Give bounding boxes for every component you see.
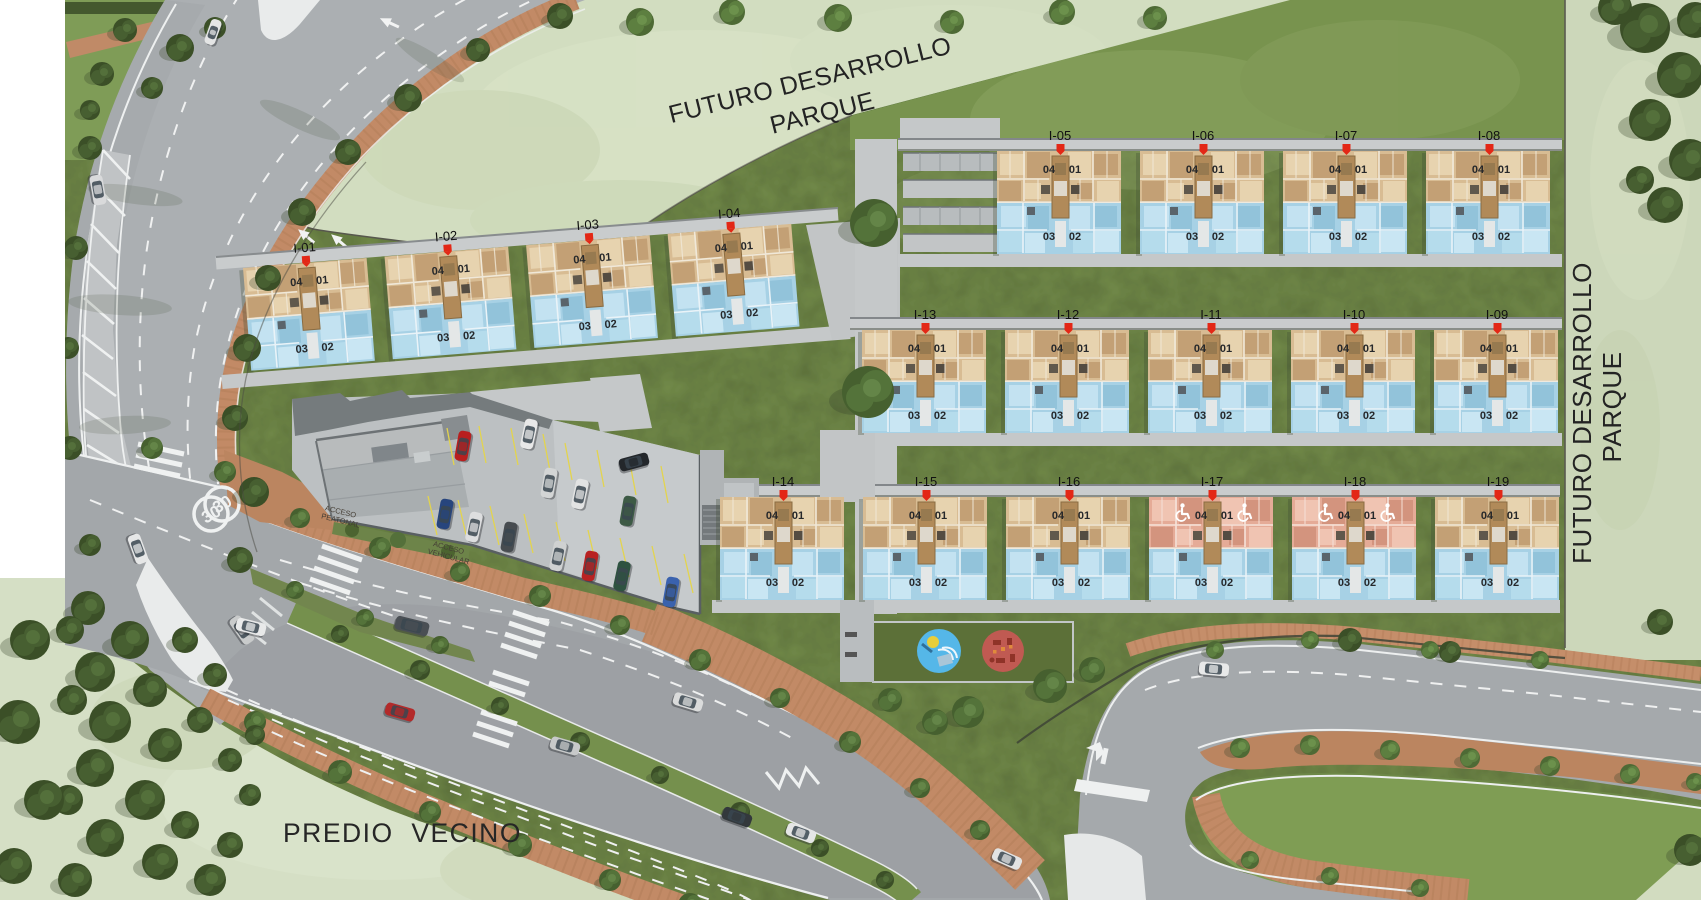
svg-text:03: 03 <box>909 577 921 589</box>
svg-text:02: 02 <box>604 318 617 331</box>
svg-text:01: 01 <box>935 510 947 522</box>
svg-text:04: 04 <box>290 276 304 289</box>
svg-text:04: 04 <box>1186 164 1199 176</box>
svg-text:01: 01 <box>1212 164 1224 176</box>
svg-text:02: 02 <box>463 330 476 343</box>
svg-text:04: 04 <box>1051 343 1064 355</box>
svg-text:01: 01 <box>1355 164 1367 176</box>
svg-text:03: 03 <box>908 410 920 422</box>
svg-text:03: 03 <box>1043 231 1055 243</box>
svg-text:I-19: I-19 <box>1487 474 1509 489</box>
svg-text:02: 02 <box>1069 231 1081 243</box>
svg-text:03: 03 <box>295 343 308 356</box>
svg-text:03: 03 <box>1472 231 1484 243</box>
svg-text:02: 02 <box>1498 231 1510 243</box>
svg-text:PARQUE: PARQUE <box>1597 352 1627 463</box>
svg-text:01: 01 <box>599 251 612 264</box>
svg-text:02: 02 <box>1355 231 1367 243</box>
svg-text:02: 02 <box>1363 410 1375 422</box>
svg-text:I-07: I-07 <box>1335 128 1357 143</box>
svg-text:02: 02 <box>1221 577 1233 589</box>
svg-text:02: 02 <box>321 341 334 354</box>
svg-text:01: 01 <box>1077 343 1089 355</box>
svg-text:04: 04 <box>766 510 779 522</box>
svg-text:I-17: I-17 <box>1201 474 1223 489</box>
svg-text:02: 02 <box>935 577 947 589</box>
svg-text:I-18: I-18 <box>1344 474 1366 489</box>
svg-text:01: 01 <box>1498 164 1510 176</box>
svg-text:I-08: I-08 <box>1478 128 1500 143</box>
svg-text:03: 03 <box>1194 410 1206 422</box>
svg-text:03: 03 <box>1329 231 1341 243</box>
svg-text:04: 04 <box>1338 510 1351 522</box>
svg-text:03: 03 <box>1480 410 1492 422</box>
svg-text:04: 04 <box>1194 343 1207 355</box>
svg-text:I-04: I-04 <box>717 205 741 222</box>
svg-text:I-13: I-13 <box>914 307 936 322</box>
svg-text:I-14: I-14 <box>772 474 794 489</box>
svg-text:01: 01 <box>1220 343 1232 355</box>
svg-text:01: 01 <box>934 343 946 355</box>
svg-text:PREDIO VECINO: PREDIO VECINO <box>283 818 522 848</box>
svg-text:01: 01 <box>457 263 470 276</box>
svg-text:03: 03 <box>720 309 733 322</box>
svg-text:04: 04 <box>1472 164 1485 176</box>
svg-text:04: 04 <box>909 510 922 522</box>
svg-text:04: 04 <box>714 242 728 255</box>
svg-text:I-06: I-06 <box>1192 128 1214 143</box>
svg-text:02: 02 <box>1078 577 1090 589</box>
svg-text:02: 02 <box>1506 410 1518 422</box>
svg-text:04: 04 <box>1481 510 1494 522</box>
svg-text:03: 03 <box>578 320 591 333</box>
svg-text:01: 01 <box>740 240 753 253</box>
svg-text:02: 02 <box>792 577 804 589</box>
svg-text:04: 04 <box>1480 343 1493 355</box>
svg-text:03: 03 <box>766 577 778 589</box>
svg-text:I-11: I-11 <box>1200 307 1221 322</box>
svg-text:I-05: I-05 <box>1049 128 1071 143</box>
svg-text:03: 03 <box>1186 231 1198 243</box>
svg-text:04: 04 <box>1329 164 1342 176</box>
svg-text:03: 03 <box>1195 577 1207 589</box>
svg-text:01: 01 <box>792 510 804 522</box>
svg-text:01: 01 <box>1221 510 1233 522</box>
svg-text:01: 01 <box>1364 510 1376 522</box>
svg-text:04: 04 <box>1052 510 1065 522</box>
svg-text:02: 02 <box>1212 231 1224 243</box>
svg-text:03: 03 <box>1052 577 1064 589</box>
svg-text:I-09: I-09 <box>1486 307 1508 322</box>
svg-text:03: 03 <box>1338 577 1350 589</box>
svg-text:02: 02 <box>934 410 946 422</box>
svg-text:03: 03 <box>437 332 450 345</box>
svg-text:04: 04 <box>573 253 587 266</box>
svg-text:02: 02 <box>1077 410 1089 422</box>
svg-text:01: 01 <box>1507 510 1519 522</box>
svg-text:I-12: I-12 <box>1057 307 1079 322</box>
svg-text:01: 01 <box>1078 510 1090 522</box>
svg-text:04: 04 <box>431 265 445 278</box>
svg-text:03: 03 <box>1481 577 1493 589</box>
svg-text:I-16: I-16 <box>1058 474 1080 489</box>
svg-text:02: 02 <box>1220 410 1232 422</box>
svg-text:02: 02 <box>1507 577 1519 589</box>
svg-text:04: 04 <box>1195 510 1208 522</box>
svg-text:01: 01 <box>316 274 329 287</box>
svg-text:04: 04 <box>1337 343 1350 355</box>
svg-text:03: 03 <box>1051 410 1063 422</box>
svg-text:I-15: I-15 <box>915 474 937 489</box>
svg-text:03: 03 <box>1337 410 1349 422</box>
svg-text:04: 04 <box>1043 164 1056 176</box>
svg-text:01: 01 <box>1506 343 1518 355</box>
svg-text:02: 02 <box>746 307 759 320</box>
svg-text:02: 02 <box>1364 577 1376 589</box>
svg-text:01: 01 <box>1363 343 1375 355</box>
svg-text:01: 01 <box>1069 164 1081 176</box>
svg-text:04: 04 <box>908 343 921 355</box>
svg-text:I-02: I-02 <box>434 228 458 245</box>
svg-text:FUTURO DESARROLLO: FUTURO DESARROLLO <box>1567 262 1597 564</box>
svg-text:I-10: I-10 <box>1343 307 1365 322</box>
svg-text:I-03: I-03 <box>576 216 600 233</box>
